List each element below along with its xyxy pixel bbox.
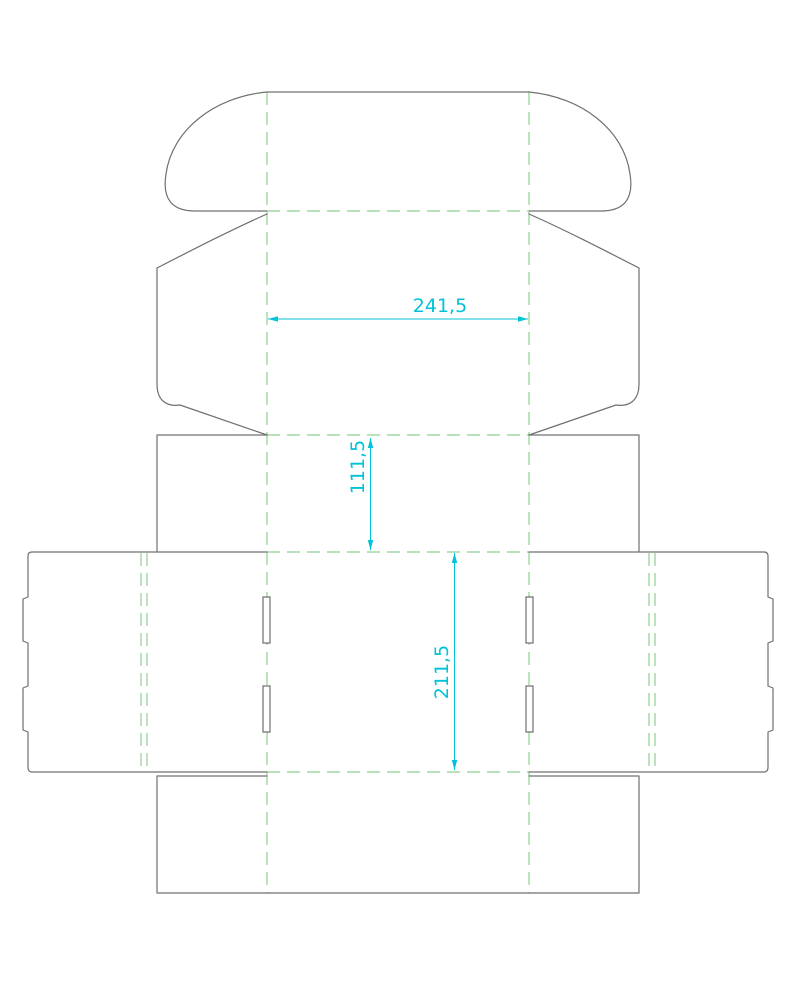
lid-dust-flap-left (157, 214, 267, 435)
lid-dust-flap-right (529, 214, 639, 435)
lock-slot-right-upper (526, 597, 533, 643)
arrow-right-icon (518, 316, 528, 321)
tuck-flap-ear-left (165, 92, 267, 211)
dimension-width: 241,5 (268, 295, 528, 322)
front-panel-outline (157, 776, 639, 893)
arrow-down-icon (452, 760, 457, 770)
lock-slot-left-lower (263, 686, 270, 732)
dimension-depth: 111,5 (347, 438, 373, 550)
fold-lines (141, 92, 655, 893)
dimension-length-label: 211,5 (431, 645, 453, 699)
tuck-flap-ear-right (529, 92, 631, 211)
lock-slot-left-upper (263, 597, 270, 643)
dimension-depth-label: 111,5 (347, 440, 369, 494)
lock-slot-right-lower (526, 686, 533, 732)
dieline-page: 241,5 111,5 211,5 (0, 0, 796, 1000)
base-left-panel-outline (23, 552, 267, 772)
base-right-panel-outline (529, 552, 773, 772)
dimension-width-label: 241,5 (413, 295, 467, 317)
arrow-left-icon (268, 316, 278, 321)
back-side-flap-left (157, 435, 267, 552)
arrow-up-icon (452, 553, 457, 563)
back-side-flap-right (529, 435, 639, 552)
lock-slots (263, 597, 533, 732)
dimension-length: 211,5 (431, 553, 457, 770)
cut-lines (23, 92, 773, 893)
arrow-down-icon (368, 540, 373, 550)
box-dieline-drawing: 241,5 111,5 211,5 (0, 0, 796, 1000)
